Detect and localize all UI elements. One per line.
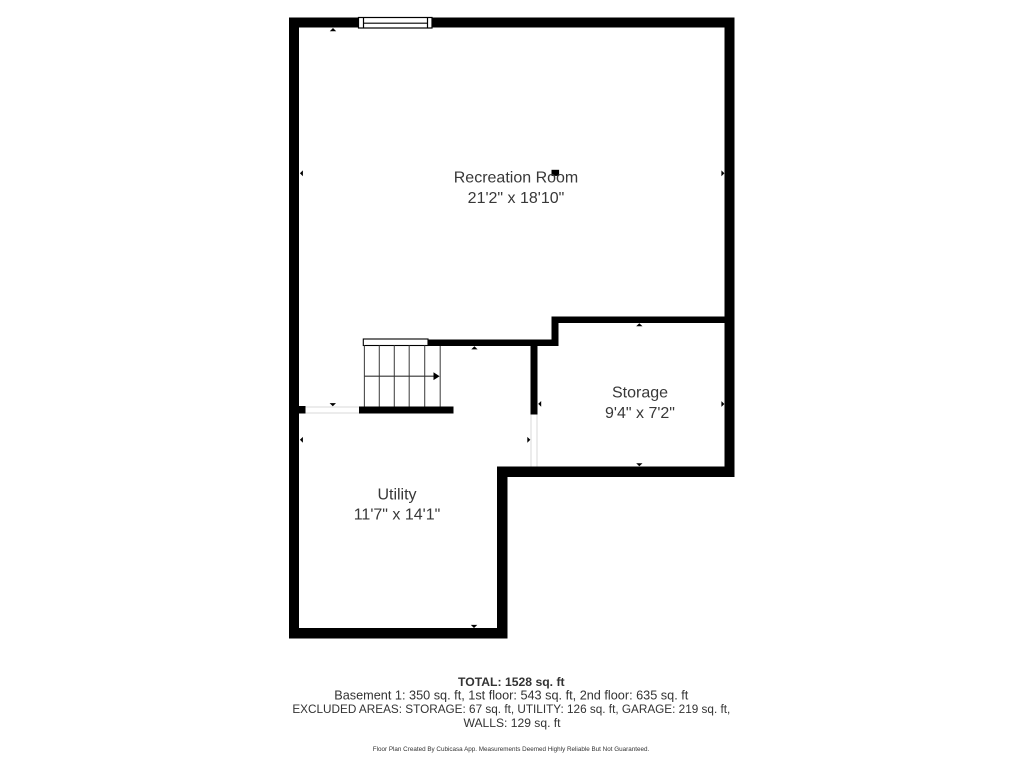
svg-text:Floor Plan Created By Cubicasa: Floor Plan Created By Cubicasa App. Meas…	[373, 746, 650, 753]
svg-text:11'7" x 14'1": 11'7" x 14'1"	[354, 507, 441, 524]
svg-text:21'2" x 18'10": 21'2" x 18'10"	[468, 190, 565, 207]
svg-text:9'4" x 7'2": 9'4" x 7'2"	[605, 405, 675, 422]
svg-text:Basement 1: 350 sq. ft, 1st fl: Basement 1: 350 sq. ft, 1st floor: 543 s…	[334, 689, 689, 703]
svg-text:EXCLUDED AREAS: STORAGE: 67 sq: EXCLUDED AREAS: STORAGE: 67 sq. ft, UTIL…	[292, 703, 730, 716]
svg-text:WALLS: 129 sq. ft: WALLS: 129 sq. ft	[463, 716, 561, 730]
svg-text:TOTAL: 1528 sq. ft: TOTAL: 1528 sq. ft	[458, 675, 565, 689]
svg-text:Storage: Storage	[612, 384, 668, 401]
svg-text:Recreation Room: Recreation Room	[454, 170, 579, 187]
svg-text:Utility: Utility	[377, 487, 416, 504]
